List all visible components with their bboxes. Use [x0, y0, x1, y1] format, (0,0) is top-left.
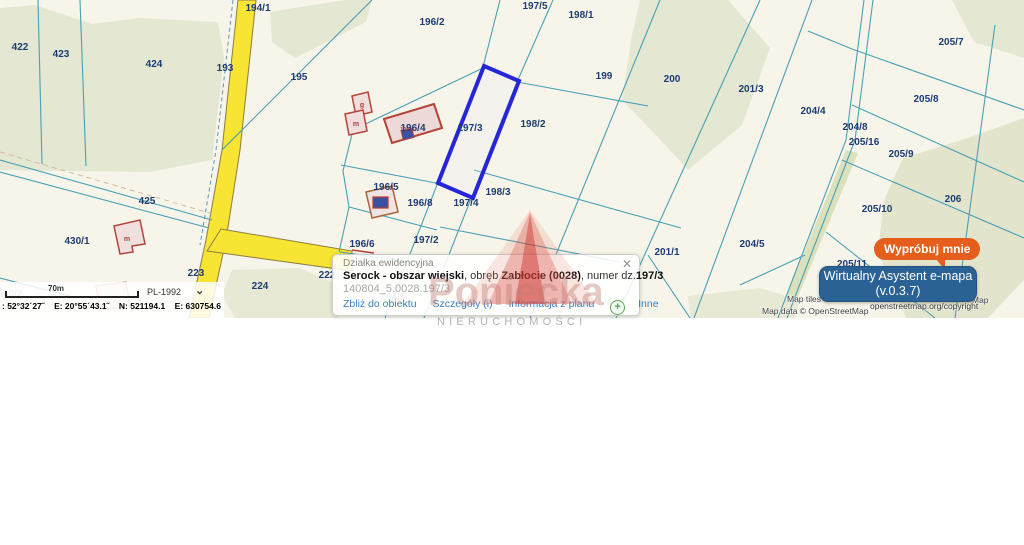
close-icon[interactable]: ✕	[622, 257, 632, 271]
parcel-label: 224	[252, 281, 269, 292]
parcel-label: 197/4	[453, 198, 478, 209]
parcel-label: 205/9	[888, 149, 913, 160]
plan-info-link[interactable]: Informacja z planu	[509, 298, 595, 310]
parcel-label: 204/4	[800, 106, 825, 117]
parcel-label: 197/2	[413, 235, 438, 246]
plus-circle-icon[interactable]: +	[610, 300, 625, 315]
assistant-button-version: (v.0.3.7)	[876, 284, 921, 298]
parcel-label: 196/4	[400, 123, 425, 134]
parcel-label: 422	[12, 42, 29, 53]
parcel-label: 194/1	[245, 3, 270, 14]
parcel-number: 197/3	[636, 270, 664, 282]
parcel-label: 204/8	[842, 122, 867, 133]
e-mapa-viewer: g m m 196/4 422 423 424 193 194/1 195 19…	[0, 0, 1024, 545]
parcel-label: 196/8	[407, 198, 432, 209]
status-bar: 70m PL-1992 ⌄ : 52°32´27˝ E: 20°55´43.1˝…	[0, 282, 224, 318]
parcel-label: 198/1	[568, 10, 593, 21]
virtual-assistant-button[interactable]: Wirtualny Asystent e-mapa (v.0.3.7)	[819, 266, 977, 302]
parcel-label: 197/3	[457, 123, 482, 134]
zoom-to-object-link[interactable]: Zbliż do obiektu	[343, 298, 417, 310]
parcel-label: 199	[596, 71, 613, 82]
other-link[interactable]: Inne	[638, 298, 658, 310]
parcel-label: 196/2	[419, 17, 444, 28]
popup-title: Działka ewidencyjna	[343, 258, 629, 269]
building-letter: m	[124, 236, 130, 243]
parcel-label: 423	[53, 49, 70, 60]
chevron-down-icon[interactable]: ⌄	[195, 284, 204, 297]
crs-selector[interactable]: PL-1992	[147, 287, 181, 297]
parcel-label: 205/16	[849, 137, 880, 148]
parcel-label: 200	[664, 74, 681, 85]
parcel-label: 204/5	[739, 239, 764, 250]
parcel-label: 206	[945, 194, 962, 205]
parcel-label: 430/1	[64, 236, 89, 247]
parcel-label: 223	[188, 268, 205, 279]
osm-copyright-link[interactable]: openstreetmap.org/copyright	[870, 301, 978, 311]
try-me-button[interactable]: Wypróbuj mnie	[874, 238, 980, 260]
parcel-label: 195	[291, 72, 308, 83]
coordinates-readout: : 52°32´27˝ E: 20°55´43.1˝ N: 521194.1 E…	[2, 301, 221, 311]
parcel-description: Serock - obszar wiejski, obręb Zabłocie …	[343, 270, 629, 282]
parcel-label: 193	[217, 63, 234, 74]
scale-bar	[5, 291, 139, 298]
parcel-label: 425	[139, 196, 156, 207]
parcel-id: 140804_5.0028.197/3	[343, 283, 629, 295]
parcel-info-popup: Działka ewidencyjna ✕ Serock - obszar wi…	[332, 254, 640, 316]
parcel-label: 205/10	[862, 204, 893, 215]
parcel-label: 196/6	[349, 239, 374, 250]
map-tiles-attribution: Map tiles	[787, 294, 821, 304]
parcel-label: 196/5	[373, 182, 398, 193]
parcel-label: 198/3	[485, 187, 510, 198]
parcel-label: 205/7	[938, 37, 963, 48]
parcel-label: 424	[146, 59, 163, 70]
map-data-attribution: Map data © OpenStreetMap	[762, 306, 868, 316]
parcel-label: 201/1	[654, 247, 679, 258]
building-letter: m	[353, 121, 359, 128]
district: Zabłocie (0028)	[501, 270, 580, 282]
parcel-label: 197/5	[522, 1, 547, 12]
details-link[interactable]: Szczegóły (i)	[432, 298, 492, 310]
building-letter: g	[360, 102, 364, 109]
assistant-button-label: Wirtualny Asystent e-mapa	[824, 269, 973, 283]
parcel-label: 201/3	[738, 84, 763, 95]
parcel-label: 205/8	[913, 94, 938, 105]
popup-links: Zbliż do obiektu Szczegóły (i) Informacj…	[343, 298, 629, 315]
municipality: Serock - obszar wiejski	[343, 270, 464, 282]
parcel-label: 198/2	[520, 119, 545, 130]
